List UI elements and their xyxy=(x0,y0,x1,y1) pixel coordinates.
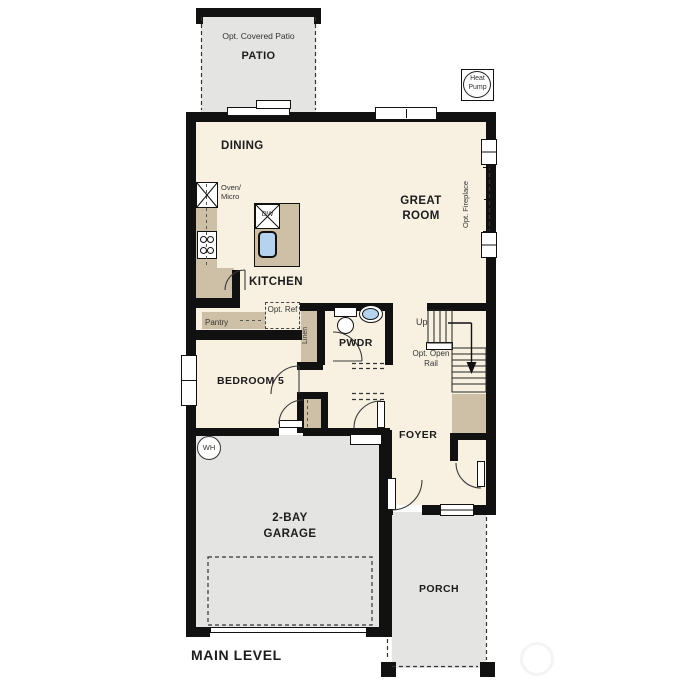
patio-slider-panel xyxy=(256,100,291,109)
great-room-label: GREAT ROOM xyxy=(381,194,461,224)
front-window xyxy=(440,504,474,516)
oven-micro-label: Oven/ Micro xyxy=(221,184,255,201)
heat-pump-label: Heat Pump xyxy=(464,75,491,92)
linen-label: Linen xyxy=(302,313,316,357)
garage-door-jamb-left xyxy=(190,627,210,637)
patio-label: PATIO xyxy=(201,50,316,62)
toilet-tank xyxy=(334,307,357,317)
porch-label: PORCH xyxy=(407,583,471,595)
pantry-wall-horizontal xyxy=(196,298,240,308)
floor-plan: Opt. Covered Patio PATIO Heat Pump DININ… xyxy=(0,0,687,687)
foyer-label: FOYER xyxy=(399,429,437,441)
powder-label: PWDR xyxy=(339,337,373,349)
front-door-leaf xyxy=(387,478,396,510)
stove xyxy=(197,231,217,259)
closet-door-leaf xyxy=(477,461,485,487)
open-rail-label: Opt. Open Rail xyxy=(408,349,454,368)
opt-ref-label: Opt. Ref xyxy=(265,305,300,315)
hall-foyer-door-leaf xyxy=(377,401,385,428)
water-heater-label: WH xyxy=(197,443,221,452)
garage-step xyxy=(350,434,382,445)
great-room-right-window-1 xyxy=(481,139,497,165)
porch-post-right xyxy=(480,662,495,677)
stair-landing xyxy=(452,394,486,433)
kitchen-counter-corner xyxy=(196,268,234,298)
garage-hall-door-leaf xyxy=(279,420,303,428)
bedroom-top-wall xyxy=(186,330,302,340)
plan-title: MAIN LEVEL xyxy=(191,647,282,663)
porch-post-left xyxy=(381,662,396,677)
garage-right-wall xyxy=(379,430,392,637)
closet-wall xyxy=(450,433,458,461)
dining-label: DINING xyxy=(221,140,264,152)
garage-label: 2-BAY GARAGE xyxy=(250,510,330,542)
oven-micro-box xyxy=(196,182,218,208)
patio-optional-label: Opt. Covered Patio xyxy=(201,31,316,41)
pantry-label: Pantry xyxy=(205,318,228,327)
great-room-right-window-2 xyxy=(481,232,497,258)
powder-right-wall xyxy=(385,303,393,365)
garage-top-wall-left xyxy=(186,428,279,436)
linen-right-wall xyxy=(317,303,325,365)
toilet-bowl xyxy=(337,317,354,334)
patio-top-wall xyxy=(196,8,321,17)
stairs-top-wall xyxy=(427,303,488,311)
powder-sink-basin xyxy=(362,308,379,320)
bedroom-window xyxy=(181,355,197,406)
garage-door-jamb-right xyxy=(366,627,387,637)
fireplace-annotation: Opt. Fireplace xyxy=(461,162,475,246)
patio-corner-right xyxy=(314,8,321,24)
stairs-up-label: Up xyxy=(416,317,428,327)
right-wall xyxy=(486,112,496,515)
powder-bottom-wall xyxy=(297,362,323,370)
dishwasher-label: DW xyxy=(255,211,280,218)
bedroom5-label: BEDROOM 5 xyxy=(217,375,284,387)
patio-corner-left xyxy=(196,8,203,24)
garage-door xyxy=(210,627,367,633)
kitchen-label: KITCHEN xyxy=(249,276,303,288)
hall-wall-b xyxy=(321,392,328,433)
hall-closet xyxy=(304,399,322,431)
great-room-top-window xyxy=(375,107,437,120)
island-sink xyxy=(258,231,277,258)
watermark-circle xyxy=(520,642,554,676)
